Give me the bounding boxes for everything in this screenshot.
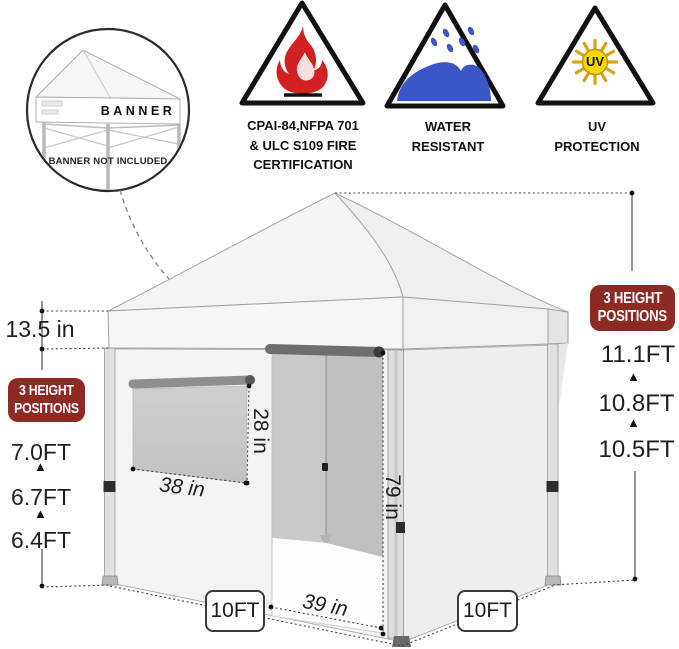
uv-sun-label: UV <box>581 54 609 69</box>
door-opening <box>270 347 385 634</box>
up-arrow-icon: ▲ <box>627 416 640 429</box>
window-height-label: 28 in <box>249 400 271 462</box>
tent-diagram-artwork <box>0 0 679 649</box>
water-warning-triangle <box>387 5 503 106</box>
banner-not-included-note: BANNER NOT INCLUDED <box>42 156 174 167</box>
fire-certification-text: CPAI-84,NFPA 701 & ULC S109 FIRE CERTIFI… <box>225 116 381 175</box>
window-roll-bar <box>133 380 250 384</box>
right-height-1: 11.1FT <box>598 342 678 367</box>
right-height-3: 10.5FT <box>594 437 679 462</box>
zipper-pull <box>322 463 328 471</box>
water-resistant-text: WATER RESISTANT <box>390 117 506 156</box>
height-positions-badge-right: 3 HEIGHT POSITIONS <box>590 285 675 331</box>
banner-label: BANNER <box>86 104 190 118</box>
tent-drawing <box>102 193 568 647</box>
door-height-label: 79 in <box>381 466 403 528</box>
up-arrow-icon: ▲ <box>34 460 47 473</box>
right-height-2: 10.8FT <box>594 391 679 416</box>
up-arrow-icon: ▲ <box>627 370 640 383</box>
window <box>133 375 255 483</box>
up-arrow-icon: ▲ <box>34 507 47 520</box>
base-width-right-box: 10FT <box>457 590 518 632</box>
product-diagram: BANNER BANNER NOT INCLUDED CPAI-84,NFPA … <box>0 0 679 649</box>
fire-warning-triangle <box>242 3 363 103</box>
height-positions-badge-left: 3 HEIGHT POSITIONS <box>8 378 85 422</box>
left-height-3: 6.4FT <box>5 528 77 552</box>
door-top-bar <box>270 349 380 352</box>
valance-height-label: 13.5 in <box>2 317 78 341</box>
base-width-left-box: 10FT <box>205 590 265 632</box>
uv-protection-text: UV PROTECTION <box>539 117 655 156</box>
